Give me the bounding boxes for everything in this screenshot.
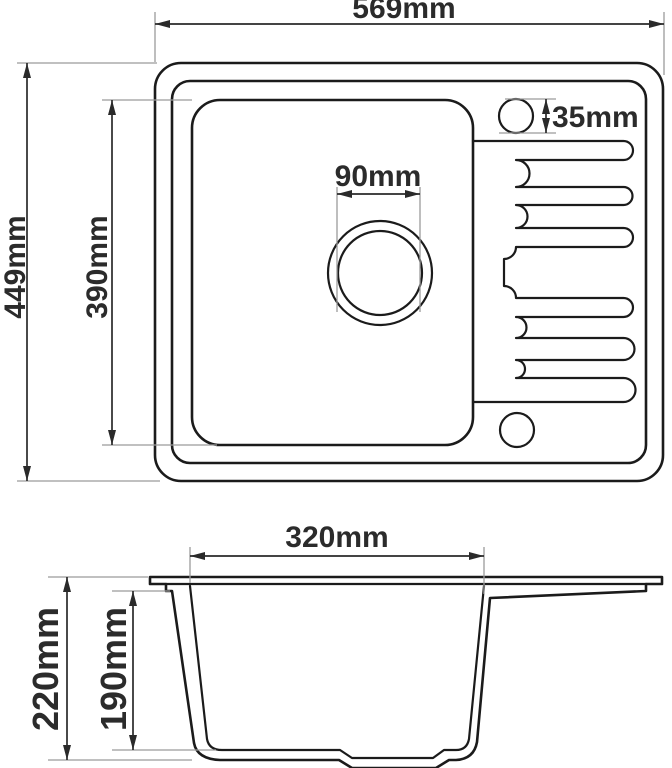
side-outer-profile [150, 577, 662, 768]
drain-hole-circle [338, 231, 422, 315]
dim-label-tap-hole: 35mm [552, 101, 639, 134]
dim-label-overall-height: 220mm [25, 607, 66, 731]
dimension-drain-diameter: 90mm [335, 160, 422, 312]
top-view: 569mm 449mm 390mm 90mm 35mm [0, 0, 664, 481]
dim-label-bowl-length: 390mm [81, 215, 114, 318]
dim-label-bowl-depth: 190mm [93, 607, 134, 731]
drainboard-groove [473, 141, 636, 402]
drain-flange-circle [328, 221, 432, 325]
side-view: 320mm 220mm 190mm [25, 521, 662, 768]
dim-label-overall-width: 569mm [352, 0, 455, 25]
bowl-outline [192, 100, 473, 445]
tap-hole-circle [499, 99, 533, 133]
dimension-bowl-length: 390mm [81, 100, 217, 445]
side-bowl-inner-profile [190, 586, 484, 758]
sink-technical-drawing: 569mm 449mm 390mm 90mm 35mm [0, 0, 672, 768]
dim-label-overall-depth: 449mm [0, 215, 32, 318]
dim-label-bowl-width: 320mm [285, 521, 388, 554]
dim-label-drain-diameter: 90mm [335, 160, 422, 193]
overflow-hole-circle [500, 413, 534, 447]
dimension-tap-hole: 35mm [499, 99, 639, 134]
sink-rim-inner-edge [172, 81, 646, 463]
technical-drawing-canvas: 569mm 449mm 390mm 90mm 35mm [0, 0, 672, 768]
dimension-bowl-depth: 190mm [93, 591, 216, 750]
dimension-overall-depth: 449mm [0, 63, 160, 481]
